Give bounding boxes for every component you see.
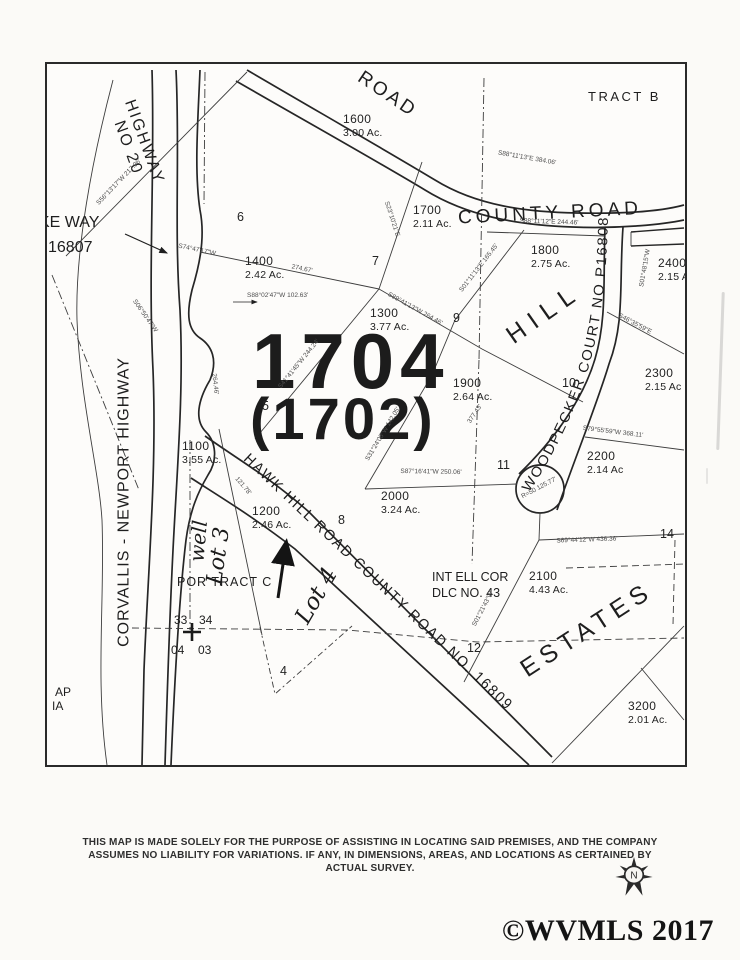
handwritten-lot-4: Lot 4	[291, 564, 343, 629]
label-corvallis-newport-highway: CORVALLIS - NEWPORT HIGHWAY	[115, 357, 132, 647]
parcel-label-2200: 22002.14 Ac	[587, 449, 623, 477]
section-number-04: 04	[171, 644, 184, 657]
lot-number-12: 12	[467, 641, 481, 655]
section-number-03: 03	[198, 644, 211, 657]
scan-mark	[706, 468, 708, 484]
survey-bearing-label: S87°16'41"W 250.06'	[400, 468, 461, 476]
lot-number-7: 7	[372, 254, 379, 268]
parcel-label-1100: 11003.55 Ac.	[182, 439, 222, 467]
lot-number-4: 4	[280, 664, 287, 678]
survey-bearing-label: 377.43'	[466, 403, 484, 424]
lot-number-10: 10	[562, 376, 576, 390]
parcel-label-1400: 14002.42 Ac.	[245, 254, 285, 282]
survey-bearing-label: 121.78'	[234, 476, 253, 497]
label-ia: IA	[52, 700, 63, 713]
tax-lot-1702: (1702)	[250, 389, 436, 452]
survey-bearing-label: S01°48'15"W	[638, 249, 652, 288]
scan-streak	[716, 292, 725, 450]
wvmls-copyright: ©WVMLS 2017	[502, 914, 714, 948]
parcel-label-1200: 12002.46 Ac.	[252, 504, 292, 532]
label-16807: 16807	[48, 239, 93, 256]
lot-number-6: 6	[237, 210, 244, 224]
label-tract-b: TRACT B	[588, 90, 661, 104]
lot-number-14: 14	[660, 527, 674, 541]
scanned-plat-map-page: HAWK HILL ROAD COUNTY ROAD NO. 16809 WOO…	[0, 0, 740, 960]
survey-bearing-label: S69°44'12"W 436.36'	[556, 535, 617, 544]
label-int-ell-cor: INT ELL COR DLC NO. 43	[432, 569, 508, 601]
map-text-overlay: TRACT B KE WAY 16807 HIGHWAY NO 20 ROAD …	[47, 64, 685, 765]
parcel-label-2100: 21004.43 Ac.	[529, 569, 569, 597]
survey-bearing-label: S74°47'17"W	[178, 243, 217, 258]
label-ke-way: KE WAY	[45, 214, 99, 231]
survey-bearing-label: R=50 125.77'	[520, 476, 557, 500]
label-hill: HILL	[502, 279, 587, 350]
parcel-label-1700: 17002.11 Ac.	[413, 203, 452, 231]
survey-bearing-label: 264.46'	[210, 373, 219, 395]
lot-number-9: 9	[453, 311, 460, 325]
parcel-label-1300: 13003.77 Ac.	[370, 306, 410, 334]
label-ap: AP	[55, 686, 71, 699]
parcel-label-2400: 24002.15 A	[658, 256, 687, 284]
label-highway-no-20: HIGHWAY NO 20	[105, 97, 168, 192]
plat-map: HAWK HILL ROAD COUNTY ROAD NO. 16809 WOO…	[45, 62, 687, 767]
lot-number-11: 11	[497, 458, 510, 472]
compass-rose-icon: N	[614, 855, 654, 899]
survey-bearing-label: S79°55'59"W 368.11'	[582, 425, 643, 439]
parcel-label-2300: 23002.15 Ac	[645, 366, 681, 394]
lot-number-8: 8	[338, 513, 345, 527]
survey-bearing-label: S01°11'13"E 165.45'	[458, 243, 500, 294]
survey-bearing-label: S46°35'59"E	[617, 312, 653, 335]
lot-number-5: 5	[262, 399, 269, 413]
survey-bearing-label: S88°02'47"W 102.63'	[247, 292, 308, 299]
section-number-34: 34	[199, 614, 212, 627]
section-number-33: 33	[174, 614, 187, 627]
parcel-label-1800: 18002.75 Ac.	[531, 243, 571, 271]
parcel-label-2000: 20003.24 Ac.	[381, 489, 421, 517]
disclaimer-line-1: THIS MAP IS MADE SOLELY FOR THE PURPOSE …	[0, 836, 740, 849]
survey-bearing-label: S06°50'47"W	[131, 298, 159, 333]
int-ell-cor-line1: INT ELL COR	[432, 569, 508, 585]
parcel-label-3200: 32002.01 Ac.	[628, 699, 668, 727]
parcel-label-1600: 16003.00 Ac.	[343, 112, 383, 140]
dlc-no-43: DLC NO. 43	[432, 585, 508, 601]
compass-north-letter: N	[630, 871, 637, 882]
survey-bearing-label: S88°11'13"E 384.06'	[497, 149, 556, 166]
survey-bearing-label: S23°10'21"E	[383, 201, 401, 238]
survey-bearing-label: 274.67'	[291, 263, 313, 274]
parcel-label-1900: 19002.64 Ac.	[453, 376, 493, 404]
